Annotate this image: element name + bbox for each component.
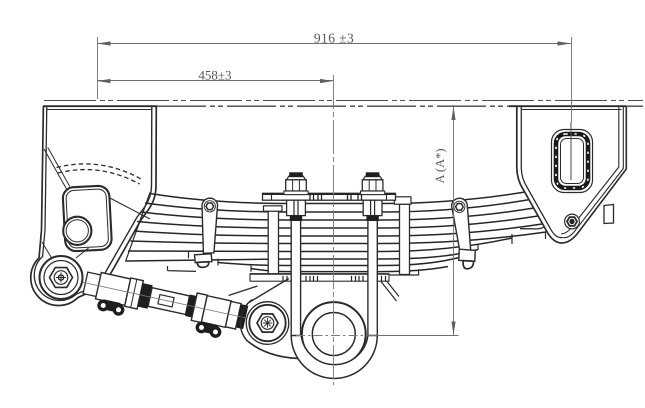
svg-text:A (A*): A (A*) xyxy=(433,148,447,183)
svg-text:458±3: 458±3 xyxy=(198,68,231,83)
svg-text:916 ±3: 916 ±3 xyxy=(314,31,354,46)
